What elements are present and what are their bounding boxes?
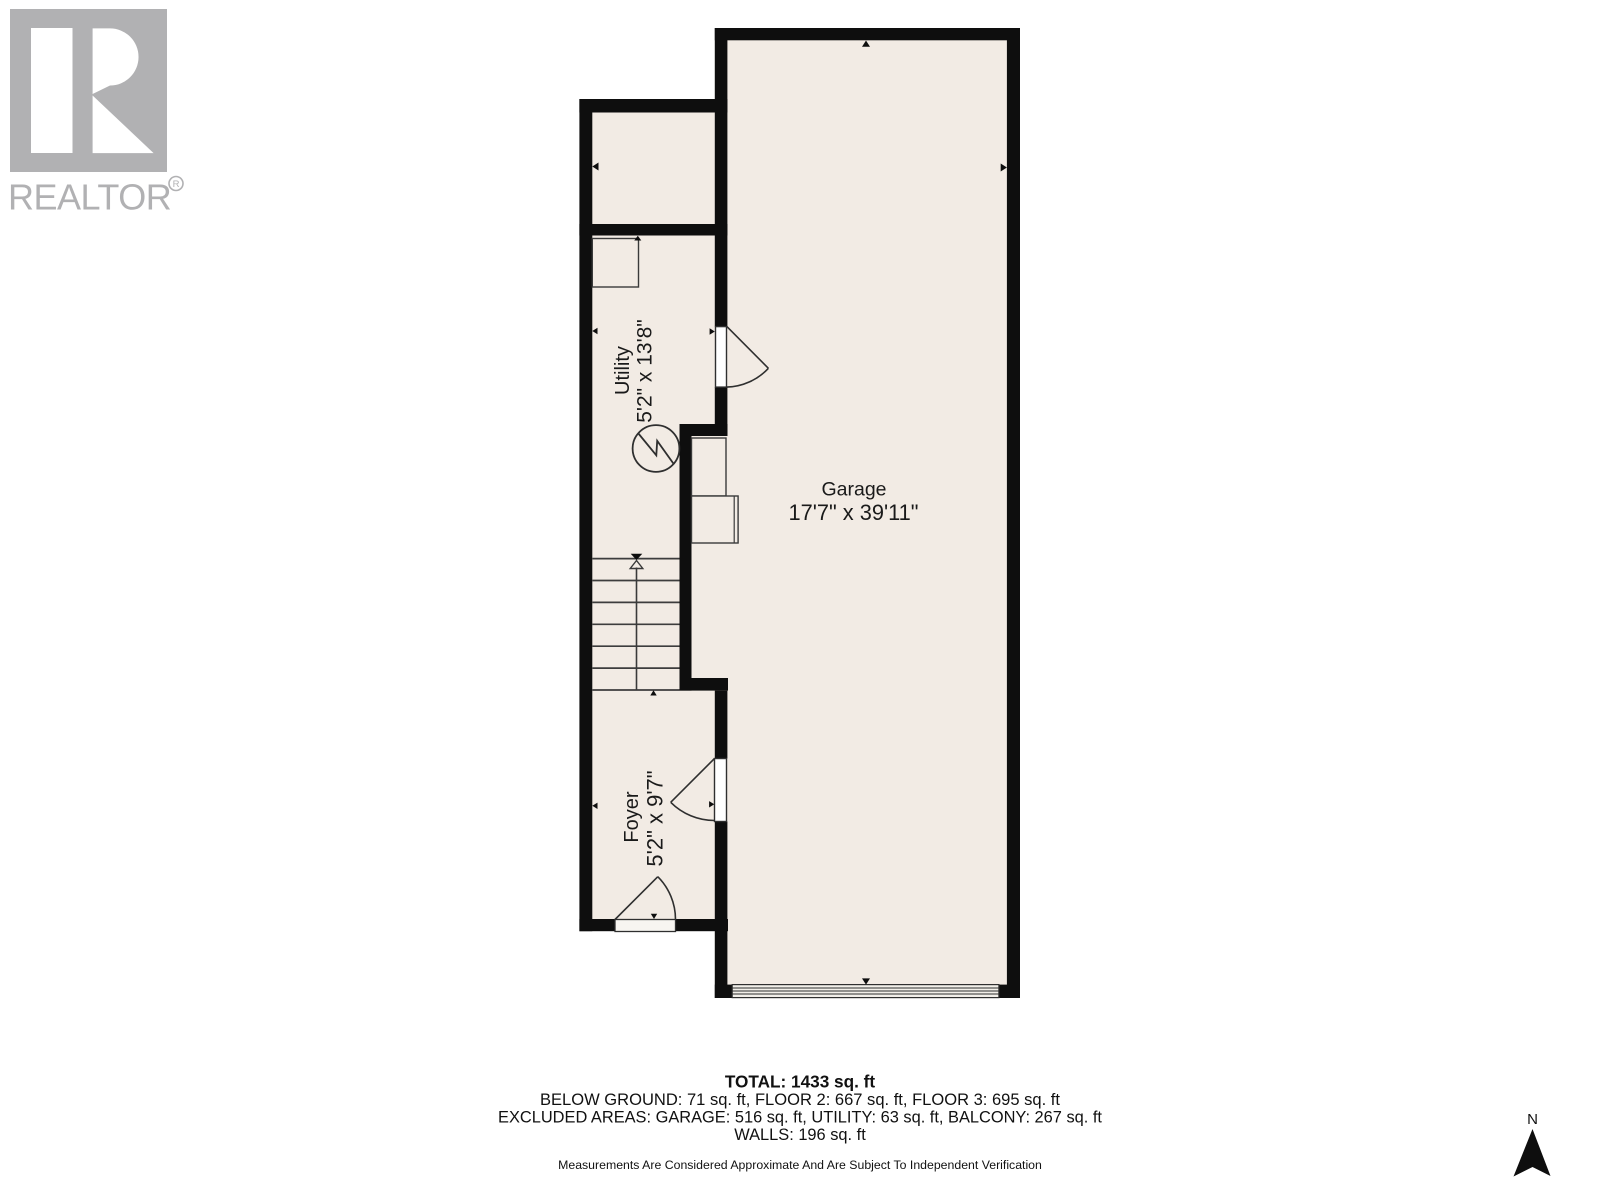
svg-text:N: N [1527,1111,1538,1128]
svg-text:EXCLUDED AREAS: GARAGE: 516 sq: EXCLUDED AREAS: GARAGE: 516 sq. ft, UTIL… [498,1109,1102,1127]
svg-text:REALTOR: REALTOR [8,177,171,218]
svg-text:TOTAL: 1433 sq. ft: TOTAL: 1433 sq. ft [725,1072,876,1092]
svg-text:5'2" x 9'7": 5'2" x 9'7" [642,770,667,866]
svg-text:WALLS: 196 sq. ft: WALLS: 196 sq. ft [734,1126,866,1144]
svg-text:R: R [173,179,180,190]
svg-text:Utility: Utility [612,346,634,395]
svg-text:BELOW GROUND: 71 sq. ft, FLOOR: BELOW GROUND: 71 sq. ft, FLOOR 2: 667 sq… [540,1090,1060,1109]
svg-text:Garage: Garage [821,479,886,501]
svg-text:Measurements Are Considered Ap: Measurements Are Considered Approximate … [558,1158,1042,1172]
svg-text:Foyer: Foyer [621,791,643,842]
svg-text:17'7" x 39'11": 17'7" x 39'11" [788,500,918,525]
svg-text:5'2" x 13'8": 5'2" x 13'8" [634,319,657,423]
